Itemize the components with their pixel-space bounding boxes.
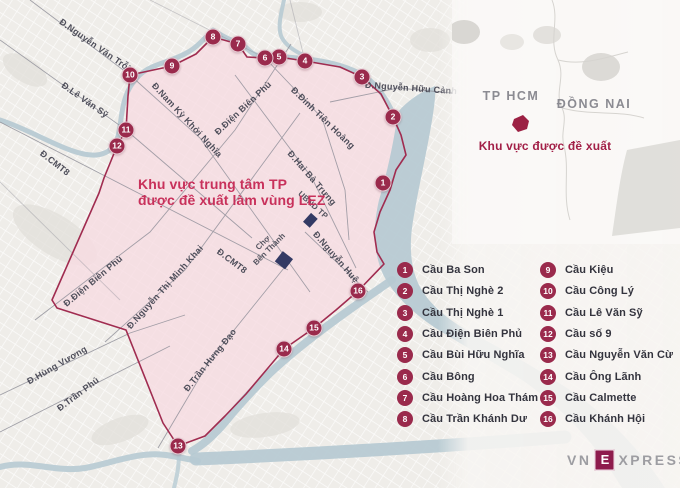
legend-label: Cầu số 9 xyxy=(565,328,612,340)
map-marker-6: 6 xyxy=(257,50,274,67)
inset-map-graphic xyxy=(452,0,680,244)
legend-label: Cầu Trần Khánh Dư xyxy=(422,413,527,425)
legend-marker-5: 5 xyxy=(397,347,413,363)
legend-marker-13: 13 xyxy=(540,347,556,363)
legend-item-10: 10Cầu Công Lý xyxy=(540,283,634,299)
legend-marker-15: 15 xyxy=(540,390,556,406)
map-marker-10: 10 xyxy=(122,67,139,84)
legend-item-8: 8Cầu Trần Khánh Dư xyxy=(397,411,527,427)
legend-label: Cầu Ông Lãnh xyxy=(565,371,641,383)
legend-item-11: 11Cầu Lê Văn Sỹ xyxy=(540,305,643,321)
legend-label: Cầu Bông xyxy=(422,371,475,383)
legend-marker-10: 10 xyxy=(540,283,556,299)
legend-item-16: 16Cầu Khánh Hội xyxy=(540,411,645,427)
legend-label: Cầu Điện Biên Phủ xyxy=(422,328,522,340)
legend-label: Cầu Thị Nghè 2 xyxy=(422,285,503,297)
legend-label: Cầu Lê Văn Sỹ xyxy=(565,307,643,319)
inset-locator-map: TP HCM ĐỒNG NAI Khu vực được đề xuất xyxy=(452,0,680,244)
legend-marker-4: 4 xyxy=(397,326,413,342)
map-title: Khu vực trung tâm TP được đề xuất làm vù… xyxy=(138,177,326,208)
legend-item-9: 9Cầu Kiệu xyxy=(540,262,613,278)
legend-label: Cầu Ba Son xyxy=(422,264,485,276)
legend-item-7: 7Cầu Hoàng Hoa Thám xyxy=(397,390,538,406)
map-marker-16: 16 xyxy=(350,283,367,300)
map-marker-1: 1 xyxy=(375,175,392,192)
legend-marker-12: 12 xyxy=(540,326,556,342)
legend-marker-8: 8 xyxy=(397,411,413,427)
logo-e-box: E xyxy=(594,449,615,471)
legend-label: Cầu Công Lý xyxy=(565,285,634,297)
legend-item-15: 15Cầu Calmette xyxy=(540,390,637,406)
legend-item-14: 14Cầu Ông Lãnh xyxy=(540,369,641,385)
legend-marker-16: 16 xyxy=(540,411,556,427)
legend-label: Cầu Kiệu xyxy=(565,264,613,276)
legend-item-2: 2Cầu Thị Nghè 2 xyxy=(397,283,503,299)
map-title-line1: Khu vực trung tâm TP xyxy=(138,177,326,193)
inset-label-dong-nai: ĐỒNG NAI xyxy=(557,97,632,111)
legend-marker-14: 14 xyxy=(540,369,556,385)
map-marker-4: 4 xyxy=(297,53,314,70)
map-marker-13: 13 xyxy=(170,438,187,455)
legend-label: Cầu Thị Nghè 1 xyxy=(422,307,503,319)
legend-item-5: 5Cầu Bùi Hữu Nghĩa xyxy=(397,347,525,363)
legend-marker-7: 7 xyxy=(397,390,413,406)
logo-text-xpress: XPRESS xyxy=(618,452,680,468)
logo-text-vn: VN xyxy=(567,452,591,468)
map-marker-12: 12 xyxy=(109,138,126,155)
map-marker-7: 7 xyxy=(230,36,247,53)
map-marker-3: 3 xyxy=(354,69,371,86)
inset-caption: Khu vực được đề xuất xyxy=(479,139,612,153)
legend-marker-3: 3 xyxy=(397,305,413,321)
legend-item-13: 13Cầu Nguyễn Văn Cừ xyxy=(540,347,673,363)
map-marker-14: 14 xyxy=(276,341,293,358)
legend-item-12: 12Cầu số 9 xyxy=(540,326,612,342)
legend-item-3: 3Cầu Thị Nghè 1 xyxy=(397,305,503,321)
legend-marker-9: 9 xyxy=(540,262,556,278)
map-marker-2: 2 xyxy=(385,109,402,126)
map-title-line2: được đề xuất làm vùng LEZ xyxy=(138,193,326,209)
legend-label: Cầu Bùi Hữu Nghĩa xyxy=(422,349,525,361)
map-marker-8: 8 xyxy=(205,29,222,46)
lez-infographic-root: Đ.Nguyễn Văn Trỗi Đ.Lê Văn Sỹ Đ.CMT8 Đ.N… xyxy=(0,0,680,488)
map-marker-9: 9 xyxy=(164,58,181,75)
vnexpress-logo: VN E XPRESS xyxy=(567,449,680,471)
legend-marker-11: 11 xyxy=(540,305,556,321)
legend-item-1: 1Cầu Ba Son xyxy=(397,262,485,278)
map-marker-11: 11 xyxy=(118,122,135,139)
legend-item-4: 4Cầu Điện Biên Phủ xyxy=(397,326,522,342)
map-marker-15: 15 xyxy=(306,320,323,337)
legend-label: Cầu Calmette xyxy=(565,392,637,404)
legend-marker-1: 1 xyxy=(397,262,413,278)
legend-marker-6: 6 xyxy=(397,369,413,385)
inset-label-tp-hcm: TP HCM xyxy=(483,89,540,103)
legend-item-6: 6Cầu Bông xyxy=(397,369,475,385)
legend-label: Cầu Nguyễn Văn Cừ xyxy=(565,349,673,361)
legend-label: Cầu Khánh Hội xyxy=(565,413,645,425)
legend-marker-2: 2 xyxy=(397,283,413,299)
legend-label: Cầu Hoàng Hoa Thám xyxy=(422,392,538,404)
